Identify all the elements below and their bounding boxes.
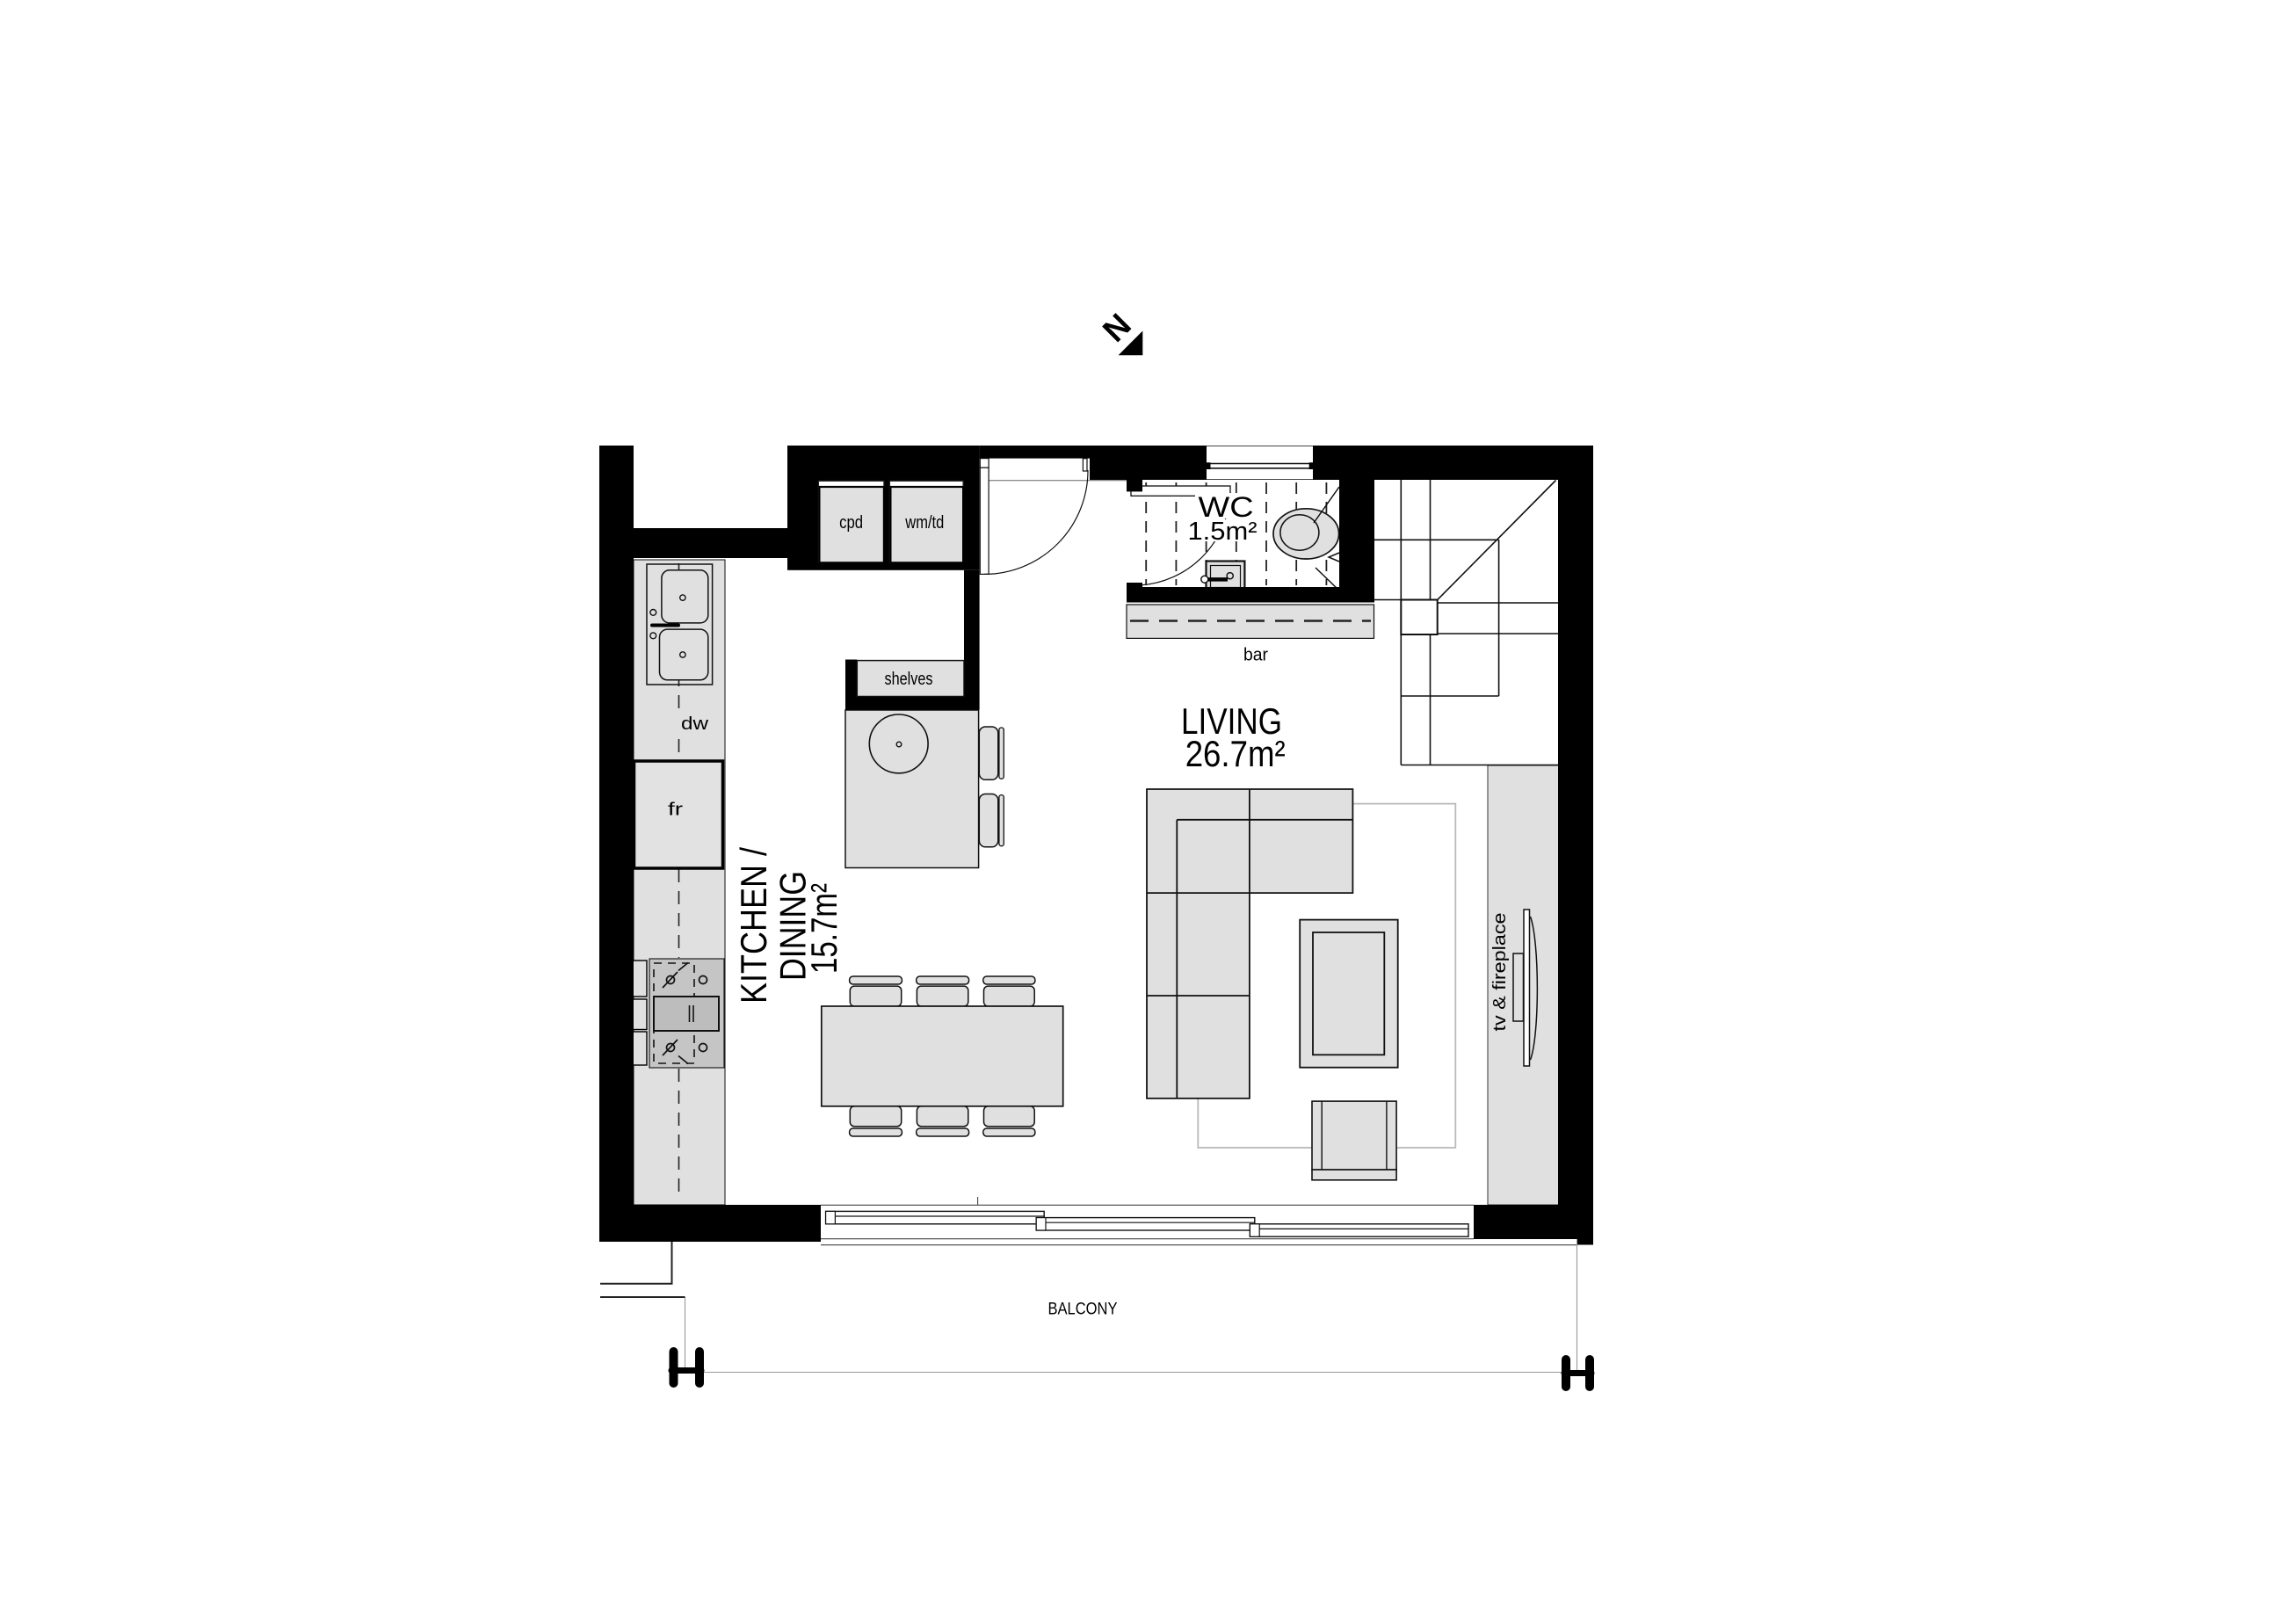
svg-text:26.7m²: 26.7m² [1185,733,1286,774]
svg-text:KITCHEN /: KITCHEN / [733,847,774,1004]
svg-text:tv & fireplace: tv & fireplace [1490,913,1510,1032]
svg-text:dw: dw [681,714,709,734]
svg-text:wm/td: wm/td [904,513,944,533]
svg-text:fr: fr [668,801,683,820]
svg-text:shelves: shelves [885,670,933,689]
svg-text:cpd: cpd [839,513,863,533]
svg-text:1.5m²: 1.5m² [1188,518,1258,546]
svg-text:bar: bar [1243,646,1268,665]
svg-text:15.7m²: 15.7m² [803,883,844,974]
svg-text:BALCONY: BALCONY [1048,1300,1118,1319]
